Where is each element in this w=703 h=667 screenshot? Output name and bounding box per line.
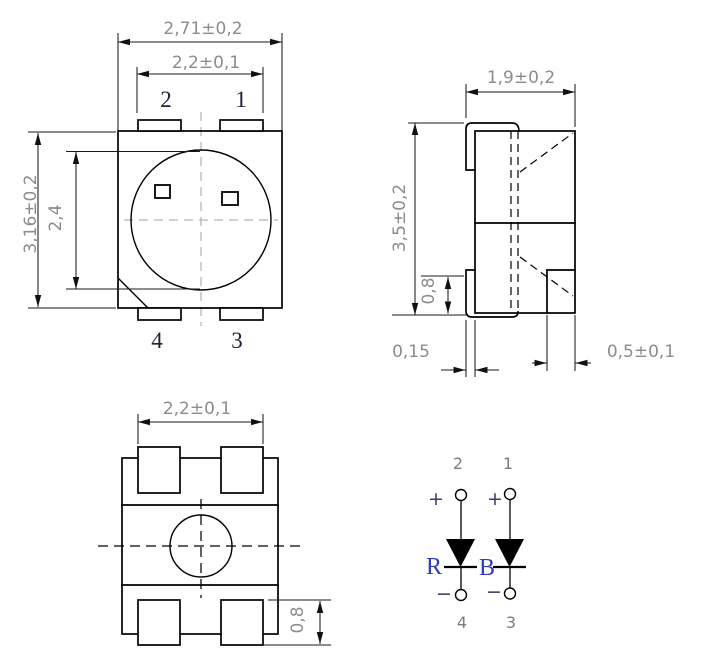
- dim-text-front-lens-height: 2,4: [46, 204, 66, 231]
- front-bottom-right-pad: [220, 308, 263, 320]
- led-chip-left: [155, 185, 170, 198]
- hidden-diagonal-upper: [520, 133, 573, 172]
- minus-sign-red: −: [436, 583, 452, 605]
- dim-text-front-outer-height: 3,16±0,2: [21, 174, 41, 253]
- dim-text-front-outer-width: 2,71±0,2: [163, 19, 242, 39]
- cathode-chamfer-line: [118, 278, 148, 308]
- diode-triangle-blue: [495, 539, 524, 567]
- cathode-terminal-blue: [505, 588, 516, 599]
- front-top-right-pad: [220, 120, 263, 131]
- side-extension-lines: [392, 84, 575, 377]
- schematic-pin-1: 1: [503, 454, 513, 473]
- bottom-view-pad-2: [138, 447, 180, 493]
- plus-sign-blue: +: [487, 488, 503, 510]
- led-package-technical-drawing: 2,71±0,2 2,2±0,1 3,16±0,2 2,4 2 1 4 3: [0, 0, 703, 667]
- diode-label-R: R: [426, 554, 442, 580]
- front-top-left-pad: [138, 120, 181, 131]
- diode-triangle-red: [446, 539, 475, 567]
- dim-text-lead-thickness: 0,15: [392, 342, 430, 362]
- bottom-view-pad-1: [221, 447, 263, 493]
- diode-label-B: B: [479, 555, 495, 581]
- minus-sign-blue: −: [486, 581, 502, 603]
- dim-text-front-pad-span: 2,2±0,1: [172, 53, 240, 73]
- dim-text-lead-width: 0,5±0,1: [607, 342, 675, 362]
- circuit-schematic: 2 + R − 4 1 + B − 3: [426, 454, 526, 632]
- led-chip-right: [222, 192, 238, 205]
- front-view: 2,71±0,2 2,2±0,1 3,16±0,2 2,4 2 1 4 3: [21, 19, 282, 353]
- schematic-pin-2: 2: [453, 454, 463, 473]
- schematic-pin-4: 4: [457, 613, 467, 632]
- bottom-view-pad-3: [221, 600, 263, 645]
- cathode-terminal-red: [456, 590, 467, 601]
- drawing-svg: 2,71±0,2 2,2±0,1 3,16±0,2 2,4 2 1 4 3: [0, 0, 703, 667]
- side-body-outline: [475, 131, 575, 313]
- pin-label-3: 3: [231, 328, 243, 353]
- dim-text-side-depth: 1,9±0,2: [487, 68, 555, 88]
- front-bottom-left-pad: [138, 308, 181, 320]
- plus-sign-red: +: [428, 488, 444, 510]
- bottom-view-pad-4: [138, 600, 180, 645]
- bottom-view: 2,2±0,1 0,8: [98, 399, 331, 645]
- schematic-pin-3: 3: [506, 613, 516, 632]
- side-view: 1,9±0,2 3,5±0,2 0,8 0,15 0,5±0,1: [390, 68, 675, 377]
- pin-label-4: 4: [151, 328, 163, 353]
- anode-terminal-blue: [505, 489, 516, 500]
- dim-text-side-height: 3,5±0,2: [390, 184, 410, 252]
- pin-label-2: 2: [160, 87, 172, 112]
- dim-text-bottom-pad-span: 2,2±0,1: [163, 399, 231, 419]
- dim-text-bottom-pad-height: 0,8: [288, 606, 308, 633]
- anode-terminal-red: [456, 490, 467, 501]
- dim-text-side-lead-height: 0,8: [419, 277, 439, 304]
- pin-label-1: 1: [235, 87, 247, 112]
